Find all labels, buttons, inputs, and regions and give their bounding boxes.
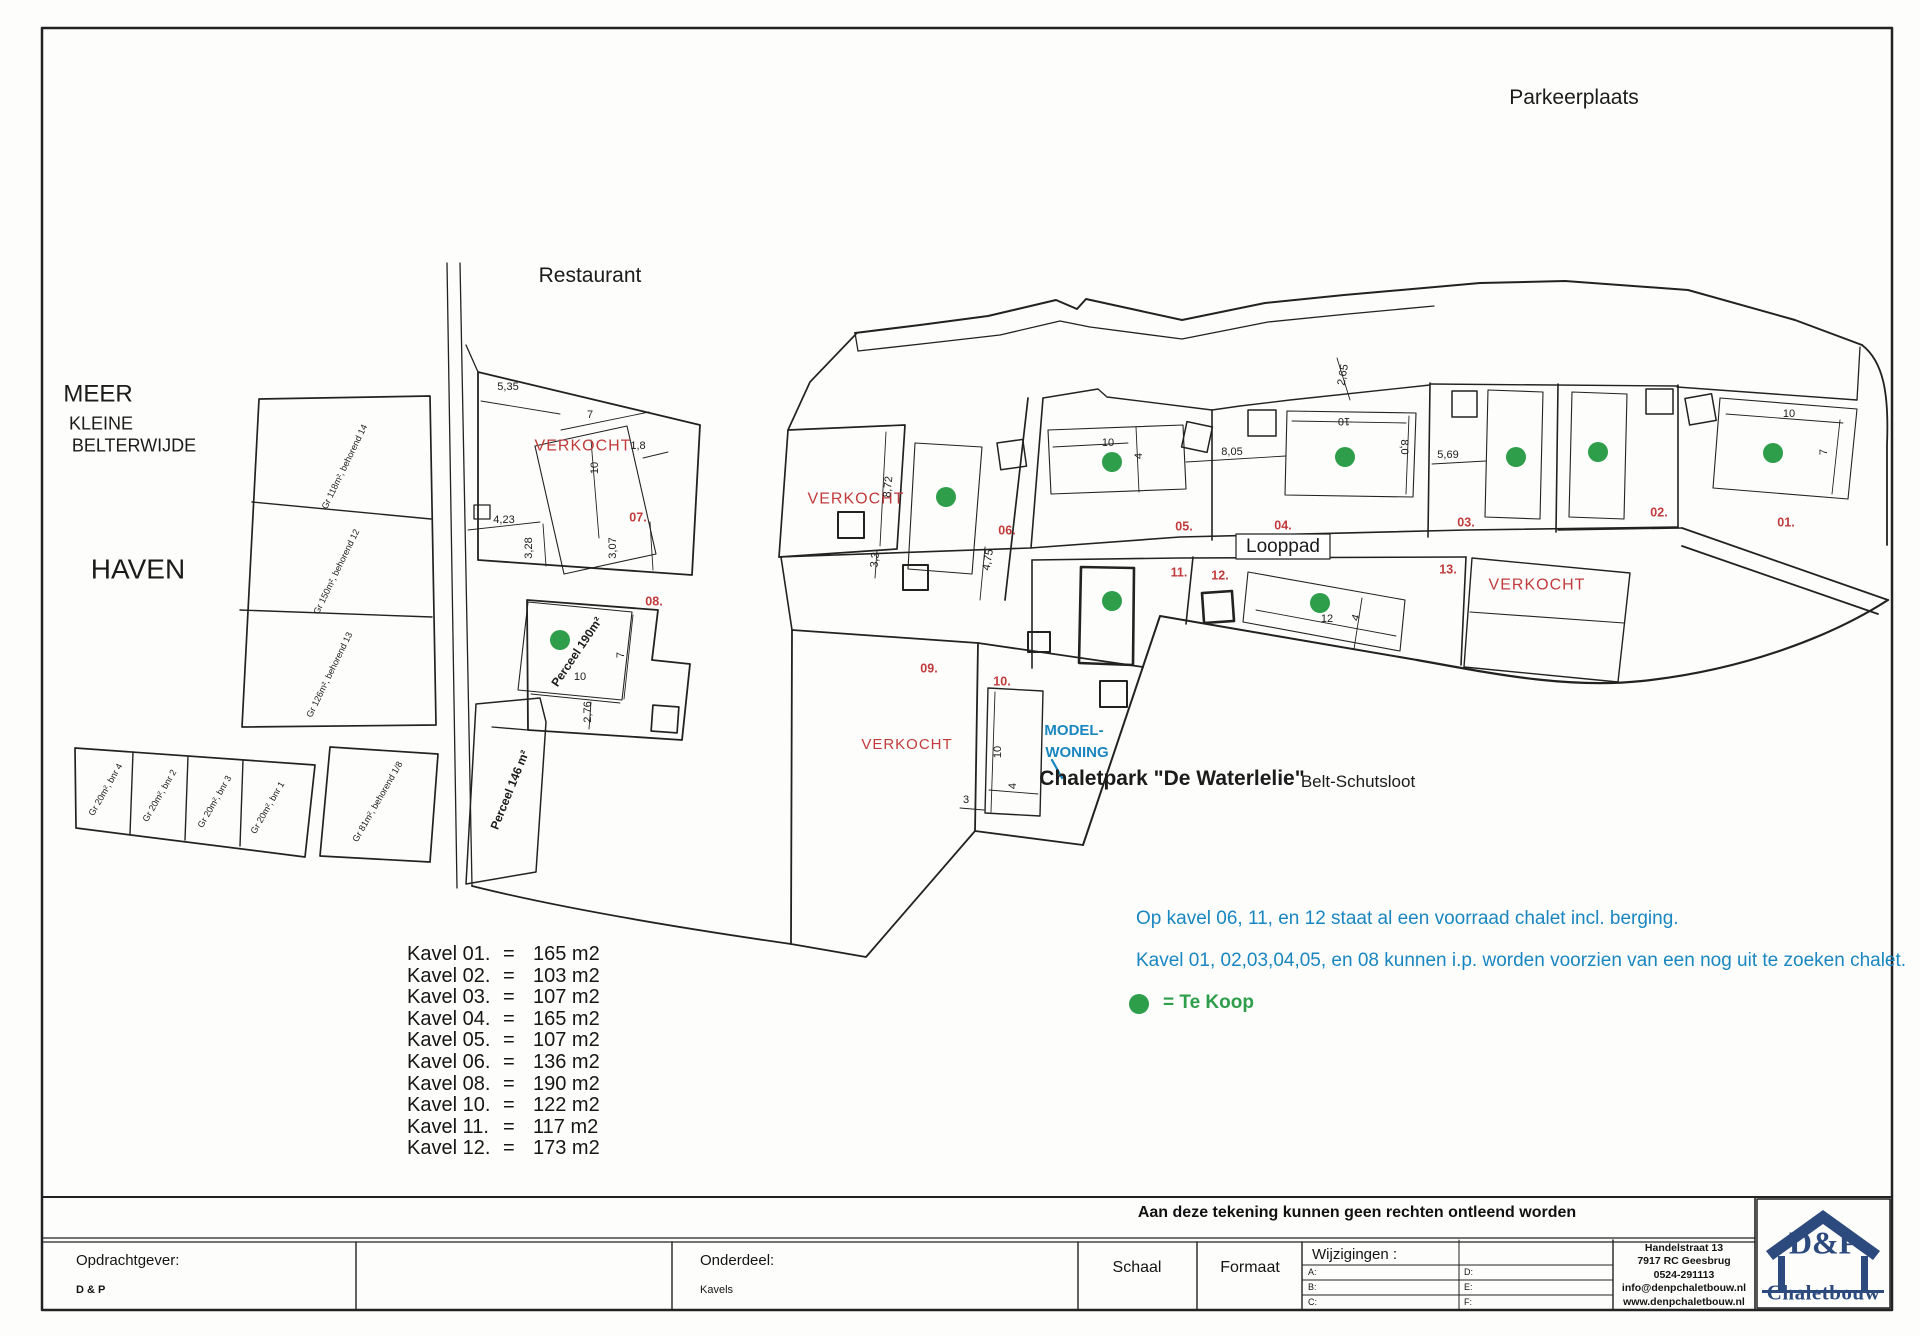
kavel-ke: = xyxy=(503,1074,533,1096)
kavel-size-row: Kavel 03.=107 m2 xyxy=(407,987,600,1009)
kavel-kv: 107 m2 xyxy=(533,987,600,1009)
kavel-size-row: Kavel 02.=103 m2 xyxy=(407,966,600,988)
kavel-ke: = xyxy=(503,1117,533,1139)
site-plan-sheet: ParkeerplaatsRestaurantMEERKLEINEBELTERW… xyxy=(0,0,1920,1336)
formaat-label: Formaat xyxy=(1220,1259,1280,1277)
schaal-label: Schaal xyxy=(1113,1259,1162,1277)
address-line: 0524-291113 xyxy=(1615,1269,1753,1282)
kavel-kl: Kavel 02. xyxy=(407,966,503,988)
kavel-kv: 165 m2 xyxy=(533,944,600,966)
north-boundary xyxy=(855,281,1887,545)
plot-11-12-13-linework xyxy=(1028,557,1888,845)
company-address-block: Handelstraat 137917 RC Geesbrug0524-2911… xyxy=(1615,1242,1753,1309)
dp-chaletbouw-logo: D&P Chaletbouw xyxy=(1757,1199,1890,1308)
plot-07-linework xyxy=(466,345,700,575)
kavel-kv: 190 m2 xyxy=(533,1074,600,1096)
onderdeel-value: Kavels xyxy=(700,1284,733,1296)
road-lines xyxy=(447,263,791,944)
kavel-ke: = xyxy=(503,1030,533,1052)
kavel-kv: 165 m2 xyxy=(533,1009,600,1031)
disclaimer-text: Aan deze tekening kunnen geen rechten on… xyxy=(1138,1204,1576,1222)
note-uit-te-zoeken-chalet: Kavel 01, 02,03,04,05, en 08 kunnen i.p.… xyxy=(1136,950,1906,972)
kavel-kl: Kavel 12. xyxy=(407,1138,503,1160)
kavel-ke: = xyxy=(503,1052,533,1074)
kavel-size-row: Kavel 01.=165 m2 xyxy=(407,944,600,966)
kavel-size-row: Kavel 05.=107 m2 xyxy=(407,1030,600,1052)
kavel-ke: = xyxy=(503,1138,533,1160)
opdrachtgever-label: Opdrachtgever: xyxy=(76,1252,179,1269)
address-line: www.denpchaletbouw.nl xyxy=(1615,1296,1753,1309)
kavel-kl: Kavel 10. xyxy=(407,1095,503,1117)
kavel-ke: = xyxy=(503,987,533,1009)
plot-03-02-01-linework xyxy=(1430,347,1888,614)
kavel-size-row: Kavel 10.=122 m2 xyxy=(407,1095,600,1117)
kavel-kv: 117 m2 xyxy=(533,1117,598,1139)
kavel-kv: 173 m2 xyxy=(533,1138,600,1160)
site-plan-linework xyxy=(0,0,1920,1336)
kavel-size-row: Kavel 11.=117 m2 xyxy=(407,1117,600,1139)
te-koop-legend-label: = Te Koop xyxy=(1163,992,1254,1014)
kavel-kv: 103 m2 xyxy=(533,966,600,988)
wijziging-letter: F: xyxy=(1464,1297,1472,1307)
plot-06-linework xyxy=(779,334,1028,600)
kavel-ke: = xyxy=(503,966,533,988)
drawing-frame xyxy=(42,28,1892,1310)
kavel-ke: = xyxy=(503,1009,533,1031)
logo-dp-text: D&P xyxy=(1789,1225,1858,1262)
opdrachtgever-value: D & P xyxy=(76,1284,105,1296)
wijzigingen-label: Wijzigingen : xyxy=(1312,1246,1397,1263)
plot-09-10-linework xyxy=(781,512,1143,957)
kavel-size-list: Kavel 01.=165 m2Kavel 02.=103 m2Kavel 03… xyxy=(407,944,600,1160)
address-line: 7917 RC Geesbrug xyxy=(1615,1255,1753,1268)
wijziging-letter: C: xyxy=(1308,1297,1317,1307)
kavel-kv: 122 m2 xyxy=(533,1095,600,1117)
modelwoning-mark xyxy=(1052,760,1062,778)
kavel-kl: Kavel 11. xyxy=(407,1117,503,1139)
plot-05-04-linework xyxy=(1031,383,1430,548)
address-line: Handelstraat 13 xyxy=(1615,1242,1753,1255)
kavel-ke: = xyxy=(503,944,533,966)
address-line: info@denpchaletbouw.nl xyxy=(1615,1282,1753,1295)
kavel-kl: Kavel 05. xyxy=(407,1030,503,1052)
wijziging-letter: B: xyxy=(1308,1282,1317,1292)
kavel-kl: Kavel 01. xyxy=(407,944,503,966)
wijziging-letter: D: xyxy=(1464,1267,1473,1277)
plot-08-linework xyxy=(492,600,690,740)
kavel-size-row: Kavel 04.=165 m2 xyxy=(407,1009,600,1031)
kavel-kl: Kavel 06. xyxy=(407,1052,503,1074)
kavel-size-row: Kavel 12.=173 m2 xyxy=(407,1138,600,1160)
kavel-kl: Kavel 08. xyxy=(407,1074,503,1096)
west-parcels xyxy=(75,396,546,884)
kavel-kl: Kavel 04. xyxy=(407,1009,503,1031)
onderdeel-label: Onderdeel: xyxy=(700,1252,774,1269)
kavel-size-row: Kavel 08.=190 m2 xyxy=(407,1074,600,1096)
kavel-size-row: Kavel 06.=136 m2 xyxy=(407,1052,600,1074)
kavel-ke: = xyxy=(503,1095,533,1117)
looppad-linework xyxy=(779,527,1678,560)
kavel-kv: 107 m2 xyxy=(533,1030,600,1052)
te-koop-legend-dot xyxy=(1129,994,1149,1014)
kavel-kl: Kavel 03. xyxy=(407,987,503,1009)
wijziging-letter: E: xyxy=(1464,1282,1473,1292)
note-voorraad-chalet: Op kavel 06, 11, en 12 staat al een voor… xyxy=(1136,908,1679,930)
kavel-kv: 136 m2 xyxy=(533,1052,600,1074)
logo-chaletbouw-text: Chaletbouw xyxy=(1767,1281,1881,1306)
wijziging-letter: A: xyxy=(1308,1267,1317,1277)
looppad-label-box xyxy=(1236,534,1330,559)
